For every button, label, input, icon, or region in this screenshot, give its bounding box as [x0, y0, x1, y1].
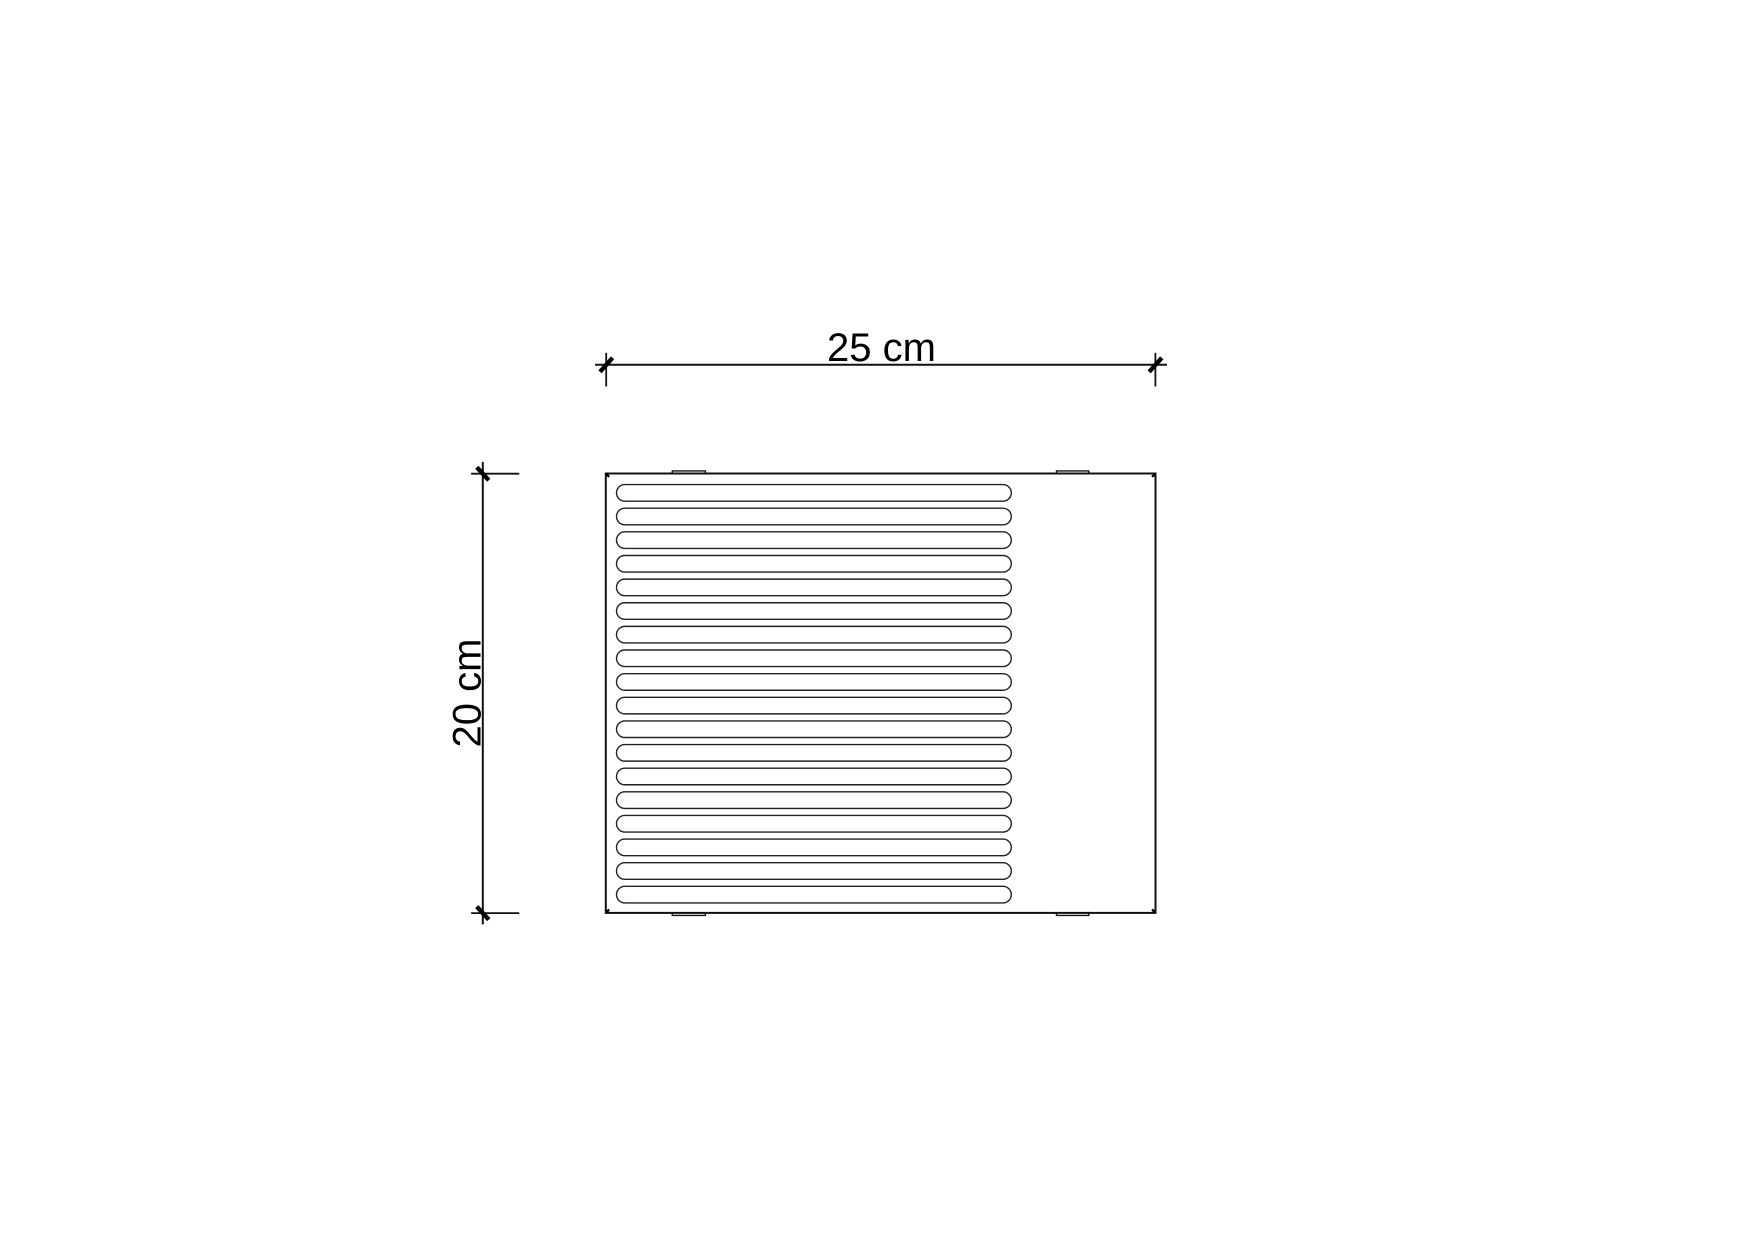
svg-text:25 cm: 25 cm [827, 326, 936, 370]
svg-text:20 cm: 20 cm [445, 639, 489, 748]
